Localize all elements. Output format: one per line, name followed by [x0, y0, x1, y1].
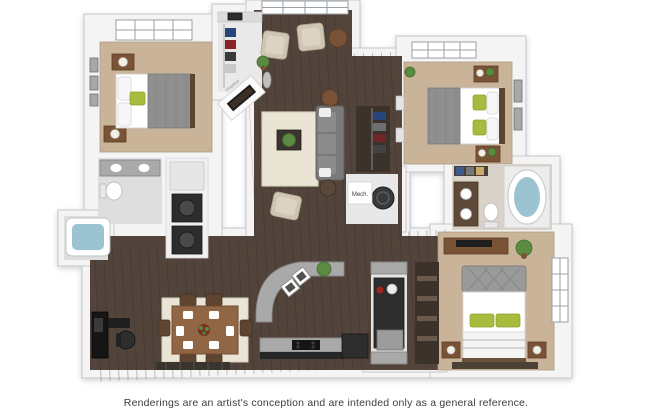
dining-area: [158, 294, 252, 366]
media-dresser: [444, 238, 508, 254]
nightstand: [442, 342, 460, 358]
closet-shelf: [417, 296, 437, 301]
sofa-pillow: [319, 168, 331, 177]
light-switch-panel: [396, 96, 404, 110]
washer-door: [387, 284, 397, 294]
bathtub: [66, 218, 110, 256]
sofa-pillow: [319, 108, 331, 117]
disclaimer-caption: Renderings are an artist's conception an…: [0, 397, 652, 409]
refrigerator: [342, 334, 368, 358]
armchair: [297, 23, 326, 52]
mech-label-plate: Mech.: [348, 182, 372, 204]
wall-art-frame: [514, 108, 522, 130]
light-switch-panel: [396, 128, 404, 142]
hanging-clothes: [225, 40, 236, 49]
wall-art-frame: [90, 94, 98, 106]
hanging-clothes: [225, 52, 236, 61]
garden-tub: [504, 166, 550, 228]
place-setting: [209, 311, 219, 319]
laundry-counter: [371, 352, 407, 364]
round-side-table: [329, 29, 347, 47]
floor-vase: [263, 72, 271, 88]
dining-chair: [180, 294, 196, 306]
nightstand: [474, 66, 498, 82]
entry-door-mat: [156, 362, 230, 370]
accent-pillow: [473, 120, 486, 135]
toilet: [484, 203, 498, 228]
mech-label: Mech.: [352, 192, 369, 198]
bed-pillow: [487, 118, 498, 140]
hanging-clothes: [373, 123, 386, 131]
centerpiece: [198, 324, 210, 336]
accent-pillow: [496, 314, 520, 327]
dining-chair: [240, 320, 252, 336]
place-setting: [176, 326, 184, 336]
hanging-clothes: [456, 167, 464, 175]
bedroom3-rug: [452, 362, 538, 369]
place-setting: [226, 326, 234, 336]
vanity-sink: [461, 209, 472, 220]
place-setting: [183, 311, 193, 319]
wall-art-frame: [90, 76, 98, 90]
bedroom2-bed: [428, 88, 505, 144]
master-bedroom-window: [116, 20, 192, 40]
vanity-sink: [461, 189, 472, 200]
table-lamp: [111, 130, 120, 139]
place-setting: [209, 341, 219, 349]
toilet: [100, 182, 122, 200]
hanging-clothes: [225, 64, 236, 73]
hanging-clothes: [476, 167, 484, 175]
accent-pillow: [470, 314, 494, 327]
bed-frame: [462, 358, 526, 362]
nightstand: [112, 54, 134, 70]
living-room-window: [262, 1, 348, 14]
hanging-clothes: [373, 112, 386, 120]
bed-footboard: [190, 74, 195, 128]
desk-return: [108, 318, 130, 328]
counter-plant: [317, 262, 331, 276]
armchair: [260, 30, 289, 59]
tub-water: [514, 177, 540, 217]
bed-pillow: [118, 77, 131, 100]
shelf-box: [228, 13, 242, 20]
bath2-vanity: [454, 182, 478, 226]
dryer: [377, 330, 403, 350]
master-bed: [116, 74, 195, 128]
double-vanity: [100, 160, 160, 176]
office-chair: [116, 331, 135, 349]
floor-plan-rendering: Fireplace: [0, 0, 652, 416]
accent-pillow: [473, 95, 486, 110]
vanity-sink: [138, 164, 150, 173]
bed-blanket: [428, 88, 460, 144]
ottoman-pouf: [320, 180, 336, 196]
tub-water: [72, 224, 104, 250]
bed-pillow: [118, 103, 131, 126]
nightstand: [476, 146, 500, 162]
vanity-sink: [110, 164, 122, 173]
laundry-counter: [371, 262, 407, 274]
bed-headboard: [499, 88, 505, 144]
bed-duvet: [463, 332, 525, 360]
cooktop: [292, 340, 320, 350]
table-plant: [283, 134, 296, 147]
round-side-table: [322, 90, 338, 106]
nightstand-plant: [486, 68, 494, 76]
bedroom3-bed: [462, 266, 526, 362]
accent-pillow: [130, 92, 145, 105]
hanging-clothes: [373, 134, 386, 142]
coffee-table: [277, 130, 301, 150]
monitor: [94, 318, 103, 332]
tv: [456, 240, 492, 247]
bed-blanket: [148, 74, 192, 128]
closet-shelf: [417, 276, 437, 281]
corner-plant: [405, 67, 415, 77]
closet-shelf: [417, 316, 437, 321]
water-heater: [372, 187, 394, 209]
sofa: [316, 106, 344, 180]
base-cabinets: [260, 352, 344, 359]
wall-art-frame: [90, 58, 98, 72]
nightstand-plant: [488, 148, 496, 156]
detergent: [377, 287, 384, 294]
dining-chair: [206, 294, 222, 306]
wall-art-frame: [514, 80, 522, 102]
armchair: [270, 191, 302, 220]
bedroom3-window: [552, 258, 568, 322]
bedroom2-window: [412, 42, 476, 58]
place-setting: [183, 341, 193, 349]
table-lamp: [119, 58, 128, 67]
hanging-clothes: [466, 167, 474, 175]
hanging-clothes: [373, 145, 386, 153]
stacked-washer-dryer: [170, 162, 204, 254]
nightstand: [528, 342, 546, 358]
bed-pillow: [487, 92, 498, 114]
hanging-clothes: [225, 28, 236, 37]
dining-chair: [158, 320, 170, 336]
closet-shelf: [417, 336, 437, 341]
